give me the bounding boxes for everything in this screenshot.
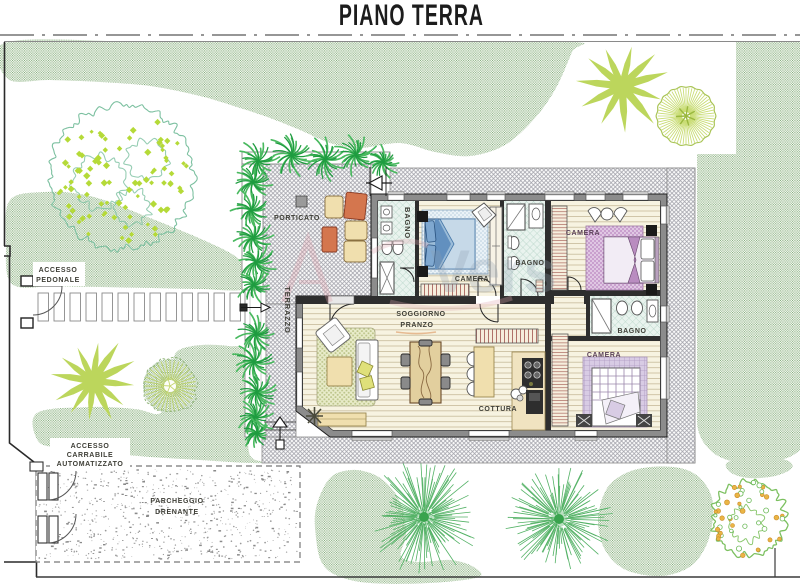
svg-text:PEDONALE: PEDONALE [36,277,80,284]
svg-text:ACCESSO: ACCESSO [71,443,110,450]
svg-text:PARCHEGGIO: PARCHEGGIO [150,498,203,505]
svg-text:PIANO TERRA: PIANO TERRA [339,0,484,32]
svg-text:BAGNO: BAGNO [515,260,544,267]
svg-text:BAGNO: BAGNO [617,328,646,335]
svg-text:CAMERA: CAMERA [566,230,600,237]
svg-text:Vers: Vers [430,238,557,305]
svg-text:PORTICATO: PORTICATO [274,215,320,222]
svg-text:CARRABILE: CARRABILE [67,452,114,459]
svg-text:ACCESSO: ACCESSO [39,267,78,274]
svg-text:TERRAZZO: TERRAZZO [283,286,292,333]
svg-text:DRENANTE: DRENANTE [155,509,199,516]
svg-text:CAMERA: CAMERA [587,352,621,359]
svg-text:CAMERA: CAMERA [455,276,489,283]
svg-text:SOGGIORNO: SOGGIORNO [396,311,445,318]
svg-text:COTTURA: COTTURA [479,406,517,413]
svg-text:PRANZO: PRANZO [400,322,433,329]
svg-text:BAGNO: BAGNO [403,207,412,239]
svg-text:AUTOMATIZZATO: AUTOMATIZZATO [57,461,124,468]
